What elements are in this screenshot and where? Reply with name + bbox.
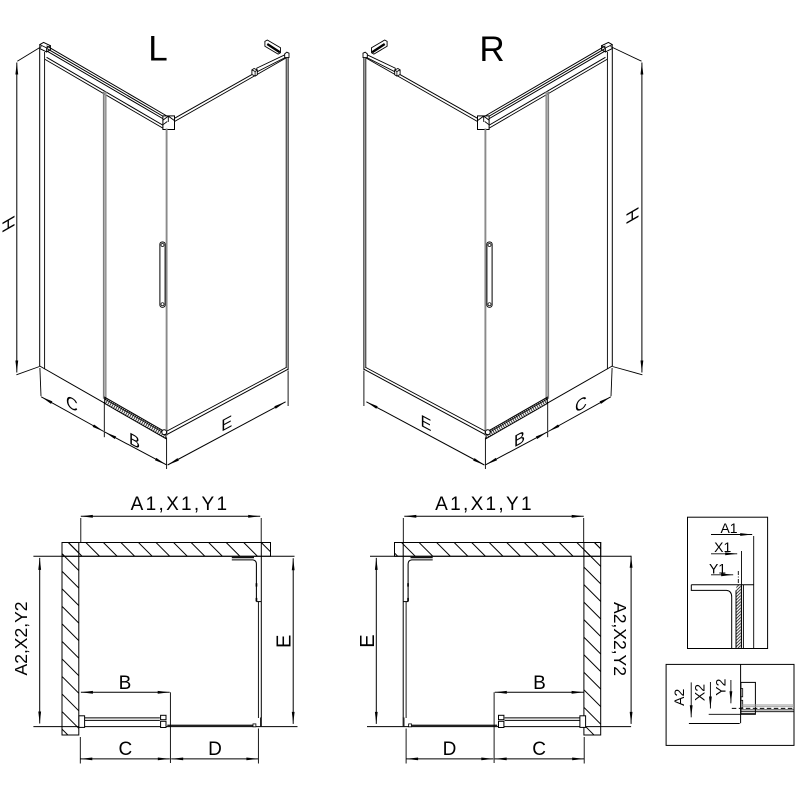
svg-text:A2,X2,Y2: A2,X2,Y2	[11, 602, 31, 676]
svg-text:D: D	[443, 739, 457, 760]
svg-text:A2: A2	[671, 689, 687, 706]
svg-text:A2,X2,Y2: A2,X2,Y2	[610, 602, 630, 676]
svg-text:X2: X2	[692, 684, 708, 701]
svg-text:A1: A1	[720, 520, 737, 536]
svg-text:E: E	[273, 635, 295, 648]
svg-text:C: C	[119, 739, 133, 760]
svg-text:Y2: Y2	[713, 678, 729, 695]
svg-text:B: B	[129, 428, 140, 453]
svg-text:A1,X1,Y1: A1,X1,Y1	[131, 494, 230, 515]
svg-text:L: L	[148, 30, 167, 69]
svg-text:E: E	[221, 411, 232, 436]
svg-text:B: B	[514, 427, 525, 452]
svg-text:D: D	[208, 739, 222, 760]
svg-text:X1: X1	[714, 539, 731, 555]
svg-text:R: R	[479, 30, 504, 69]
svg-text:B: B	[533, 673, 546, 694]
svg-text:C: C	[532, 739, 546, 760]
svg-text:B: B	[119, 673, 132, 694]
svg-text:A1,X1,Y1: A1,X1,Y1	[435, 494, 534, 515]
svg-text:H: H	[624, 203, 643, 227]
svg-text:C: C	[575, 391, 587, 416]
svg-text:H: H	[0, 212, 19, 236]
svg-text:E: E	[357, 634, 379, 647]
svg-text:C: C	[66, 391, 78, 416]
svg-text:Y1: Y1	[709, 561, 726, 577]
